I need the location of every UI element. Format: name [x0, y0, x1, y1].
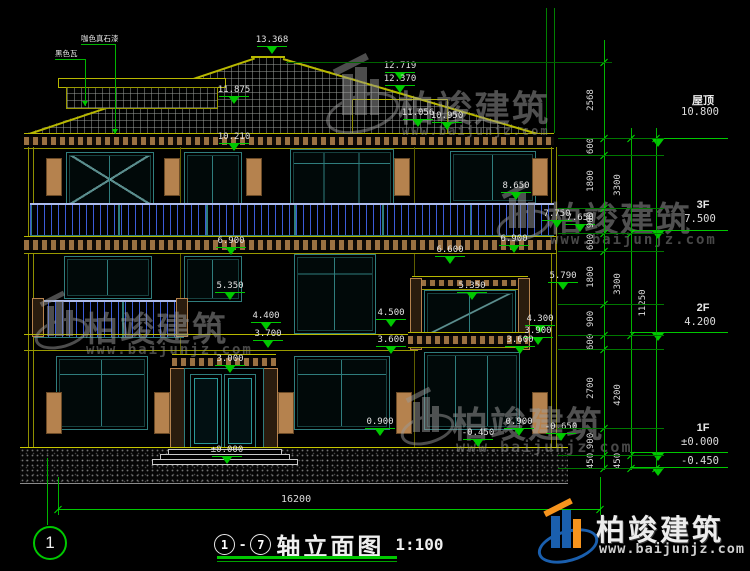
- dim-chain-value: 3300: [613, 174, 623, 196]
- window-1f-bay: [424, 352, 520, 430]
- level-value: 10.800: [667, 107, 733, 117]
- company-url: www.baijunjz.com: [599, 541, 745, 557]
- overall-dim-line: [58, 509, 600, 510]
- entry-door-right: [224, 374, 256, 448]
- window-1f-1: [56, 356, 148, 430]
- dim-chain-line: [656, 128, 657, 470]
- ridge-level-line: [286, 62, 612, 63]
- extension-line: [554, 8, 555, 133]
- dim-connector: [558, 208, 664, 209]
- dim-connector: [558, 138, 664, 139]
- window-2f-1: [64, 256, 152, 299]
- level-value: ±0.000: [667, 437, 733, 447]
- level-value: -0.450: [667, 456, 733, 466]
- window-1f-2: [294, 356, 390, 430]
- dim-chain-value: 1800: [586, 170, 596, 192]
- window-2f-bay: [424, 290, 516, 337]
- dim-connector: [558, 335, 664, 336]
- level-label: 3F: [673, 199, 733, 211]
- material-label-roof-tile: 黑色瓦: [55, 49, 78, 58]
- level-label: 2F: [673, 302, 733, 314]
- elevation-marker: -0.450: [433, 428, 523, 447]
- dim-chain-value: 2568: [586, 89, 596, 111]
- axis-start-bubble: 1: [214, 534, 235, 555]
- dim-chain-value: 900: [586, 433, 596, 449]
- extension-line: [546, 8, 547, 133]
- slab-band-2f: [24, 334, 418, 351]
- roof-ridge: [251, 56, 285, 58]
- window-3f-1: [66, 152, 154, 207]
- window-2f-2: [184, 256, 242, 302]
- dim-chain-value: 11250: [638, 289, 648, 316]
- window-3f-3: [290, 149, 394, 207]
- dim-chain-value: 600: [586, 138, 596, 154]
- dim-chain-value: 900: [586, 212, 596, 228]
- wall-corner-right: [551, 147, 557, 447]
- balcony-post: [32, 298, 44, 337]
- level-value: 7.500: [667, 214, 733, 224]
- wall-sconce: [46, 392, 62, 434]
- axis-separator: -: [240, 536, 245, 554]
- dim-chain-value: 3300: [613, 273, 623, 295]
- wall-sconce: [394, 158, 410, 196]
- dim-chain-value: 600: [586, 334, 596, 350]
- dim-chain-value: 1800: [586, 266, 596, 288]
- ground-base-line: [20, 483, 568, 484]
- dim-connector: [558, 304, 664, 305]
- axis-line: [47, 458, 48, 525]
- wall-sconce: [278, 392, 294, 434]
- level-value: 4.200: [667, 317, 733, 327]
- eave-fascia-band: [24, 133, 554, 149]
- leader-line: [115, 44, 116, 134]
- wall-sconce: [532, 158, 548, 196]
- dim-connector: [558, 349, 664, 350]
- axis-bubble-1: 1: [33, 526, 67, 560]
- parapet-body: [66, 87, 218, 109]
- leader-line: [81, 44, 115, 45]
- wall-sconce: [532, 392, 548, 434]
- elevation-marker: 12.719: [355, 61, 445, 80]
- axis-end-bubble: 7: [250, 534, 271, 555]
- wall-sconce: [164, 158, 180, 196]
- material-label-stone-paint: 咖色真石漆: [81, 34, 119, 43]
- dim-connector: [558, 251, 664, 252]
- entry-door-left: [190, 374, 222, 448]
- window-3f-4: [450, 151, 536, 204]
- wall-sconce: [246, 158, 262, 196]
- bay-band-top: [412, 276, 528, 290]
- wall-corner-left: [28, 147, 34, 447]
- axis-bubble-label: 1: [45, 533, 54, 553]
- title-underline-thin: [217, 561, 397, 562]
- dim-chain-value: 2700: [586, 377, 596, 399]
- title-scale: 1:100: [395, 535, 443, 554]
- elevation-marker: 13.368: [227, 35, 317, 54]
- roof-sub-eave-right: [447, 99, 448, 133]
- slab-band-3f: [24, 236, 556, 254]
- bay-band-bottom: [408, 332, 528, 348]
- leader-arrow: [82, 101, 88, 106]
- level-line: [630, 332, 728, 333]
- dim-connector: [558, 468, 664, 469]
- wall-sconce: [396, 392, 412, 434]
- level-line: [630, 230, 728, 231]
- dim-connector: [558, 428, 664, 429]
- ground-hatch: [20, 447, 568, 484]
- leader-line: [85, 59, 86, 106]
- entry-step: [152, 459, 298, 465]
- window-2f-center: [294, 254, 376, 334]
- dim-chain-line: [604, 40, 605, 470]
- leader-line: [55, 59, 85, 60]
- title-underline: [217, 556, 397, 559]
- watermark-url: www.baijunjz.com: [550, 232, 717, 248]
- dim-chain-value: 4200: [613, 384, 623, 406]
- dim-chain-line: [631, 128, 632, 470]
- wall-sconce: [46, 158, 62, 196]
- door-pilaster: [262, 368, 278, 450]
- balcony-post: [176, 298, 188, 337]
- dim-connector: [558, 455, 664, 456]
- company-logo-icon: [541, 504, 591, 562]
- leader-arrow: [112, 129, 118, 134]
- level-label: 1F: [673, 422, 733, 434]
- roof-sub-eave: [352, 99, 448, 100]
- dim-chain-value: 600: [586, 234, 596, 250]
- dim-connector: [558, 155, 664, 156]
- balcony-railing-3f: [30, 203, 554, 236]
- window-3f-2: [184, 152, 242, 207]
- overall-dim-value: 16200: [281, 495, 311, 505]
- wall-sconce: [154, 392, 170, 434]
- dim-connector: [558, 233, 664, 234]
- cad-sheet: 柏竣建筑 www.baijunjz.com 柏竣建筑 www.baijunjz.…: [0, 0, 750, 571]
- level-line: [630, 452, 728, 453]
- dim-chain-value: 900: [586, 311, 596, 327]
- balcony-railing-2f: [34, 300, 184, 338]
- roof-sub-eave-left: [352, 99, 353, 133]
